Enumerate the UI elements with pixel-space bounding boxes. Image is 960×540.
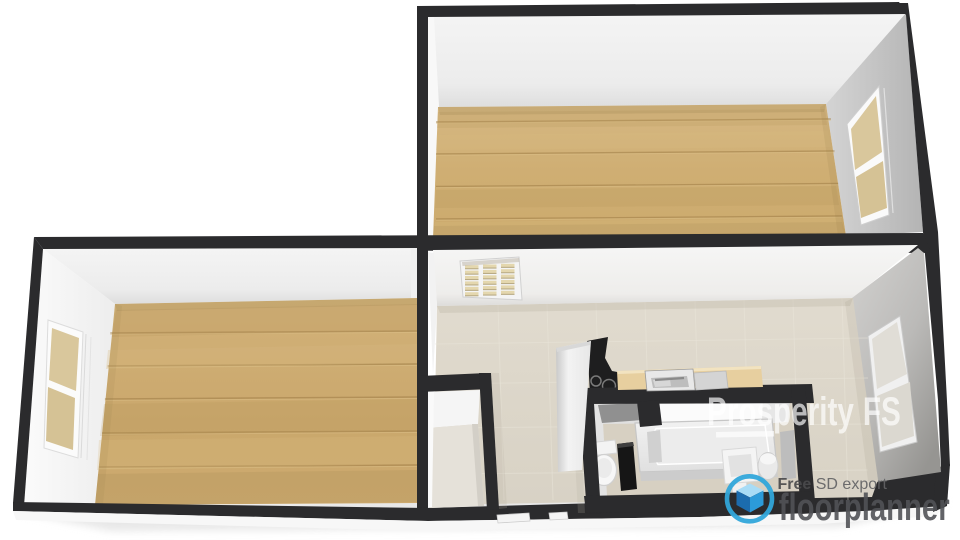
svg-text:ProsperityFS: ProsperityFS: [707, 390, 901, 434]
svg-text:floorplanner: floorplanner: [779, 486, 950, 529]
